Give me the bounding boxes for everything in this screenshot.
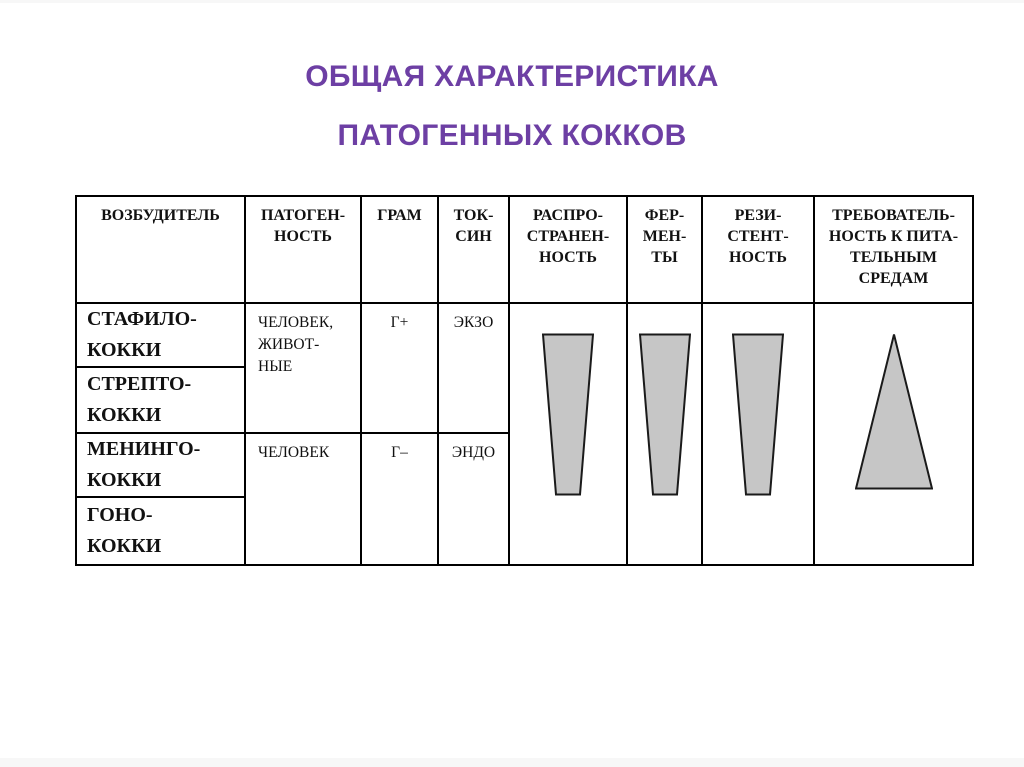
slide-title-line-2: ПАТОГЕННЫХ КОККОВ xyxy=(0,106,1024,165)
presentation-slide: ОБЩАЯ ХАРАКТЕРИСТИКА ПАТОГЕННЫХ КОККОВ В… xyxy=(0,0,1024,767)
cell-pathogenicity-group2: ЧЕЛОВЕК xyxy=(245,433,361,565)
cell-enzymes-shape xyxy=(627,303,702,565)
col-header-resistance: РЕЗИ- СТЕНТ- НОСТЬ xyxy=(702,196,814,303)
col-header-distribution: РАСПРО- СТРАНЕН- НОСТЬ xyxy=(509,196,627,303)
cell-resistance-shape xyxy=(702,303,814,565)
row-label-gonococci: ГОНО- КОККИ xyxy=(76,497,245,565)
table-row: СТАФИЛО- КОККИ ЧЕЛОВЕК, ЖИВОТ- НЫЕ Г+ ЭК… xyxy=(76,303,973,367)
row-label-staphylococci: СТАФИЛО- КОККИ xyxy=(76,303,245,367)
slide-top-border xyxy=(0,0,1024,3)
cell-toxin-group1: ЭКЗО xyxy=(438,303,509,433)
cell-distribution-shape xyxy=(509,303,627,565)
cell-pathogenicity-group1: ЧЕЛОВЕК, ЖИВОТ- НЫЕ xyxy=(245,303,361,433)
enzymes-trapezoid-shape xyxy=(639,333,691,496)
slide-bottom-border xyxy=(0,758,1024,767)
cell-gram-group2: Г– xyxy=(361,433,438,565)
pathogenic-cocci-table: ВОЗБУДИТЕЛЬ ПАТОГЕН- НОСТЬ ГРАМ ТОК- СИН… xyxy=(75,195,974,566)
cell-gram-group1: Г+ xyxy=(361,303,438,433)
col-header-gram: ГРАМ xyxy=(361,196,438,303)
cell-toxin-group2: ЭНДО xyxy=(438,433,509,565)
distribution-trapezoid-shape xyxy=(542,333,594,496)
row-label-streptococci: СТРЕПТО- КОККИ xyxy=(76,367,245,433)
table-header-row: ВОЗБУДИТЕЛЬ ПАТОГЕН- НОСТЬ ГРАМ ТОК- СИН… xyxy=(76,196,973,303)
col-header-toxin: ТОК- СИН xyxy=(438,196,509,303)
col-header-pathogenicity: ПАТОГЕН- НОСТЬ xyxy=(245,196,361,303)
col-header-pathogen: ВОЗБУДИТЕЛЬ xyxy=(76,196,245,303)
col-header-nutrient-requirement: ТРЕБОВАТЕЛЬ- НОСТЬ К ПИТА- ТЕЛЬНЫМ СРЕДА… xyxy=(814,196,973,303)
resistance-trapezoid-shape xyxy=(732,333,784,496)
cell-nutrient-requirement-shape xyxy=(814,303,973,565)
slide-title: ОБЩАЯ ХАРАКТЕРИСТИКА ПАТОГЕННЫХ КОККОВ xyxy=(0,47,1024,165)
col-header-enzymes: ФЕР- МЕН- ТЫ xyxy=(627,196,702,303)
nutrient-requirement-triangle-shape xyxy=(855,333,933,490)
slide-title-line-1: ОБЩАЯ ХАРАКТЕРИСТИКА xyxy=(0,47,1024,106)
row-label-meningococci: МЕНИНГО- КОККИ xyxy=(76,433,245,497)
